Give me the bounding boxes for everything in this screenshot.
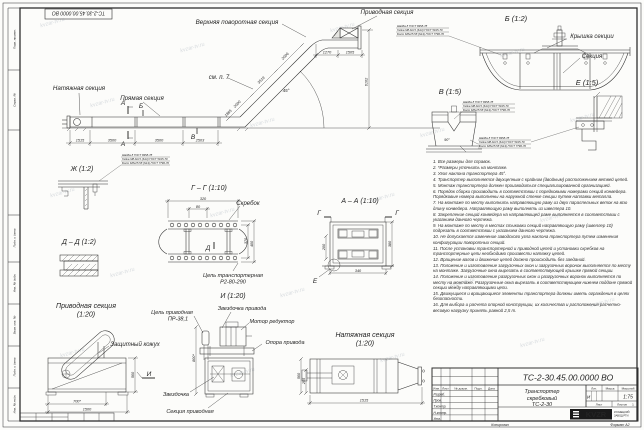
dim-90deg: 90° xyxy=(444,138,450,142)
view-dd: Д – Д (1:2) xyxy=(60,239,98,276)
fastener-note-ve: Шайба 8 ГОСТ 6958-78 Гайка М8-6Н.5 (S13)… xyxy=(470,127,579,148)
view-zh-title: Ж (1:2) xyxy=(70,166,94,173)
view-gg: Г – Г (1:10) xyxy=(159,185,263,286)
doc-number: ТС-2-30.45.00.0000 ВО xyxy=(523,373,614,383)
col-data: Дата xyxy=(488,386,495,390)
frame-label: Инв. № дубл. xyxy=(13,274,17,293)
row-nkontr: Н.контр. xyxy=(434,411,448,415)
note-item-14: 14. Положение и изготовление разгрузочны… xyxy=(433,274,634,290)
dim-2503: 2503 xyxy=(195,139,205,143)
dim-80: 80 xyxy=(196,205,201,209)
dim-700: 700* xyxy=(73,400,81,404)
dim-1505: 1505 xyxy=(346,51,355,55)
view-v: В (1:5) 90° xyxy=(426,87,482,152)
note-item-16: 16. Для выбора и расчета опорной констру… xyxy=(433,302,634,313)
view-tension-section: Натяжная секция (1:20) xyxy=(297,332,425,405)
dim-255-tension: 255 xyxy=(302,377,306,385)
section-mark-g: Г xyxy=(395,210,399,217)
fastener-line: Болт М8х25.58 (S13) ГОСТ 7796-70 xyxy=(463,108,510,112)
label-chain-transport-type: Р2-80-290 xyxy=(220,280,247,286)
label-straight-section: Прямая секция xyxy=(120,95,164,102)
scale-value: 1:75 xyxy=(623,395,633,401)
label-drive-section-top: Приводная секция xyxy=(361,9,415,16)
frame-strip-labels: Перв. примен. Справ. № Подп. и дата Инв.… xyxy=(13,29,17,413)
note-item-9: 9. На монтаже по месту в местах стыковки… xyxy=(433,223,634,234)
label-sprocket: Звездочка xyxy=(163,392,189,398)
title-block: ТС-2-30.45.00.0000 ВО Транспортер скребк… xyxy=(432,368,638,427)
label-drive-chain-type: ПР-38,1 xyxy=(168,317,188,323)
label-drive-chain: Цепь приводная xyxy=(151,310,193,316)
label-drive-support: Опора привода xyxy=(265,340,304,346)
dim-3519: 3519 xyxy=(257,75,266,84)
view-b: Б (1:2) xyxy=(480,14,630,90)
view-aa-title: А – А (1:10) xyxy=(340,198,378,205)
view-dd-title: Д – Д (1:2) xyxy=(61,239,96,246)
view-tension-title2: (1:20) xyxy=(356,341,374,348)
view-e-title: Е (1:5) xyxy=(576,78,599,87)
dim-800: 800* xyxy=(192,354,196,362)
label-drive-section-view: Секция приводная xyxy=(166,409,213,415)
section-mark-a: А xyxy=(120,100,125,107)
view-b-title: Б (1:2) xyxy=(505,14,528,23)
sheet-header: Лист xyxy=(596,402,603,406)
kvzr-logo: KVZR КУЗНЕЦКИЙ ЗАВОД РТИ xyxy=(570,409,630,420)
col-list: Лист xyxy=(442,386,449,390)
section-mark-g: Г xyxy=(317,210,321,217)
note-item-3: 3. Угол наклона транспортера 45°. xyxy=(433,171,634,176)
col-izm: Изм. xyxy=(433,386,440,390)
row-razrab: Разраб. xyxy=(434,393,446,397)
label-section-cover: Крышка секции xyxy=(570,34,614,40)
fastener-line: Болт М8х25.58 (S13) ГОСТ 7796-70 xyxy=(397,32,444,36)
dim-1515-tension: 1515 xyxy=(360,399,369,403)
row-tkontr: Т.контр. xyxy=(434,405,447,409)
scale-header: Масштаб xyxy=(622,386,635,390)
note-item-12: 12. Вращение валов и движение цепей долж… xyxy=(433,257,634,262)
frame-label: Подп. и дата xyxy=(13,357,17,376)
view-drive-section: Приводная секция (1:20) xyxy=(45,302,161,414)
dim-2006: 2006 xyxy=(280,51,290,61)
logo-sub1: КУЗНЕЦКИЙ xyxy=(614,410,630,414)
copied-label: Копировал xyxy=(491,423,508,427)
fastener-line: Болт М8х25.58 (S13) ГОСТ 7796-70 xyxy=(479,144,526,148)
note-item-8: 8. Закрепление секций конвейера на напра… xyxy=(433,212,634,223)
view-zh: Ж (1:2) xyxy=(58,166,108,209)
notes-list: 1. Все размеры для справок. 2. *Размеры … xyxy=(433,159,634,314)
label-tension-section: Натяжная секция xyxy=(53,85,106,92)
label-motor-reducer: Мотор редуктор xyxy=(250,319,295,325)
note-item-6: 6. Порядок сборки производить в соответс… xyxy=(433,189,634,200)
frame-label: Инв. № подл. xyxy=(13,395,17,414)
logo-sub2: ЗАВОД РТИ xyxy=(614,414,629,418)
fastener-note-v: Шайба 8 ГОСТ 6958-78 Гайка М8-6Н.5 (S13)… xyxy=(454,100,515,119)
view-drive-title1: Приводная секция xyxy=(56,302,116,310)
note-item-5: 5. Монтаж транспортера должен производит… xyxy=(433,183,634,188)
label-protective-cover: Защитный кожух xyxy=(110,341,160,348)
dim-1515: 1515 xyxy=(76,139,85,143)
label-chain-transport: Цепь транспортерная xyxy=(203,273,263,279)
col-doc: № докум. xyxy=(454,386,467,390)
note-item-4: 4. Транспортер выполняется двухцепным с … xyxy=(433,177,634,182)
label-scraper: Скребок xyxy=(236,201,261,207)
fastener-note-b: Шайба 8 ГОСТ 6958-78 Гайка М8-6Н.5 (S13)… xyxy=(396,24,501,55)
doc-name-line2: скребковый xyxy=(527,395,557,402)
dim-560: 560 xyxy=(131,371,135,378)
label-see-note: см. п. 7 xyxy=(209,75,230,81)
frame-label: Перв. примен. xyxy=(13,29,17,49)
view-i: И (1:20) xyxy=(151,293,304,415)
dim-6102: 6102 xyxy=(365,77,369,86)
section-mark-a: А xyxy=(120,141,125,148)
main-assembly-view xyxy=(62,16,440,146)
section-mark-d: Д xyxy=(205,245,211,252)
frame-label: Взам. инв. № xyxy=(13,315,17,334)
note-item-1: 1. Все размеры для справок. xyxy=(433,159,634,164)
mass-header: Масса xyxy=(606,386,615,390)
note-item-11: 11. После установки транспортерной и при… xyxy=(433,246,634,257)
stamp-top-number: ТС-2-30.45.00.0000 ВО xyxy=(52,10,105,16)
note-item-13: 13. Положение и изготовление загрузочных… xyxy=(433,263,634,274)
dim-400: 400 xyxy=(250,240,254,247)
format-label: Формат А2 xyxy=(610,423,629,427)
angle-dim: 45° xyxy=(283,88,290,93)
doc-name-line1: Транспортер xyxy=(525,389,560,395)
label-upper-turn-section: Верхняя поворотная секция xyxy=(196,19,279,26)
dim-3500: 3500 xyxy=(108,139,117,143)
fastener-note-zh: Шайба 8 ГОСТ 6958-78 Гайка М8-6Н.5 (S13)… xyxy=(99,153,170,181)
row-utv: Утв. xyxy=(434,417,441,421)
label-section: Секция xyxy=(582,54,603,60)
sheets-header: Листов xyxy=(617,402,627,406)
view-mark-i: И xyxy=(147,371,152,378)
dim-200: 200 xyxy=(322,243,326,251)
view-gg-title: Г – Г (1:10) xyxy=(191,185,227,192)
view-v-title: В (1:5) xyxy=(439,87,462,96)
dim-1500: 1500 xyxy=(83,408,92,412)
note-item-10: 10. Не допускается изменение заводского … xyxy=(433,234,634,245)
frame-label: Подп. и дата xyxy=(13,228,17,247)
view-i-title: И (1:20) xyxy=(220,293,245,300)
dim-370: 370 xyxy=(244,237,248,244)
drawing-sheet: kvzar-tv.ru kvzar-tv.ru kvzar-tv.ru kvza… xyxy=(0,0,644,430)
detail-mark-e: Е xyxy=(313,278,318,285)
view-e: Е (1:5) xyxy=(576,78,622,150)
section-mark-b: Б xyxy=(139,103,143,110)
label-drive-sprocket: Звездочка привода xyxy=(218,306,267,312)
view-aa: А – А (1:10) xyxy=(313,198,399,285)
dim-320: 320 xyxy=(200,197,207,201)
logo-text: KVZR xyxy=(586,410,607,419)
note-item-2: 2. *Размеры уточнить на монтаже. xyxy=(433,165,634,170)
dim-340: 340 xyxy=(355,269,362,273)
fastener-line: Болт М8х25.58 (S13) ГОСТ 7796-70 xyxy=(122,161,169,165)
view-drive-title2: (1:20) xyxy=(77,312,95,319)
dim-2000: 2000 xyxy=(232,99,242,109)
dim-1270: 1270 xyxy=(323,51,332,55)
dim-3500: 3500 xyxy=(155,139,164,143)
col-podp: Подп. xyxy=(475,386,483,390)
dim-560-tension: 560 xyxy=(297,372,301,379)
lit-value: И xyxy=(587,394,591,399)
note-item-7: 7. На монтаже по месту выполнить направл… xyxy=(433,200,634,211)
dim-380: 380 xyxy=(388,240,392,247)
dim-1865: 1865 xyxy=(224,108,233,117)
frame-label: Справ. № xyxy=(13,92,17,106)
view-tension-title1: Натяжная секция xyxy=(335,332,394,339)
row-prov: Пров. xyxy=(434,399,443,403)
lit-header: Лит. xyxy=(591,386,597,390)
sheets-value: 1 xyxy=(632,402,634,406)
note-item-15: 15. Движущиеся и вращающиеся элементы тр… xyxy=(433,291,634,302)
doc-name-line3: ТС-2-30 xyxy=(532,402,553,408)
